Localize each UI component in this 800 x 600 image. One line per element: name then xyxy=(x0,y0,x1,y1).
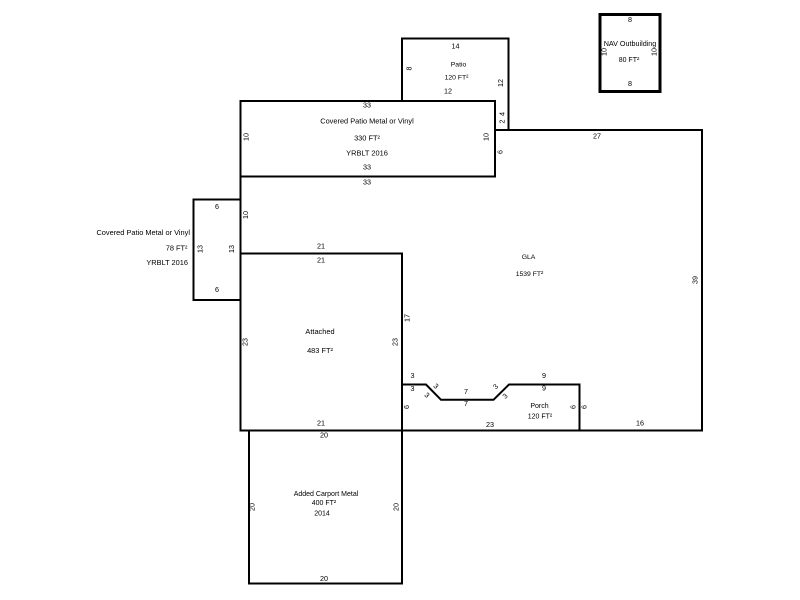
svg-text:4: 4 xyxy=(498,112,507,116)
svg-text:8: 8 xyxy=(628,15,632,24)
svg-text:GLA: GLA xyxy=(522,254,536,261)
svg-text:400 FT²: 400 FT² xyxy=(312,500,337,507)
svg-text:8: 8 xyxy=(628,79,632,88)
svg-text:21: 21 xyxy=(317,419,325,428)
svg-text:6: 6 xyxy=(215,285,219,294)
svg-text:10: 10 xyxy=(242,133,251,141)
svg-text:6: 6 xyxy=(496,150,505,154)
svg-text:7: 7 xyxy=(464,387,468,396)
svg-text:10: 10 xyxy=(241,211,250,219)
svg-text:10: 10 xyxy=(482,133,491,141)
svg-text:20: 20 xyxy=(320,431,328,440)
svg-text:33: 33 xyxy=(363,178,371,187)
svg-text:23: 23 xyxy=(486,420,494,429)
svg-text:16: 16 xyxy=(636,419,644,428)
svg-text:6: 6 xyxy=(580,405,589,409)
svg-text:17: 17 xyxy=(403,314,412,322)
svg-text:6: 6 xyxy=(402,405,411,409)
svg-text:120 FT²: 120 FT² xyxy=(528,414,553,421)
svg-text:6: 6 xyxy=(215,202,219,211)
svg-text:12: 12 xyxy=(444,87,452,96)
svg-text:27: 27 xyxy=(593,132,601,141)
svg-text:33: 33 xyxy=(363,163,371,172)
svg-text:20: 20 xyxy=(320,574,328,583)
svg-text:Porch: Porch xyxy=(530,403,548,410)
svg-text:20: 20 xyxy=(248,503,257,511)
svg-text:33: 33 xyxy=(363,101,371,110)
svg-text:483 FT²: 483 FT² xyxy=(307,346,333,355)
svg-text:7: 7 xyxy=(464,399,468,408)
svg-text:YRBLT 2016: YRBLT 2016 xyxy=(146,258,188,267)
svg-text:78 FT²: 78 FT² xyxy=(166,244,188,253)
svg-text:13: 13 xyxy=(227,245,236,253)
svg-text:3: 3 xyxy=(411,384,415,393)
svg-text:Added Carport Metal: Added Carport Metal xyxy=(294,491,359,498)
svg-text:1539 FT²: 1539 FT² xyxy=(516,271,544,278)
svg-text:120 FT²: 120 FT² xyxy=(445,75,470,82)
svg-text:8: 8 xyxy=(405,67,414,71)
svg-text:2: 2 xyxy=(498,120,507,124)
svg-text:23: 23 xyxy=(391,338,400,346)
svg-text:21: 21 xyxy=(317,256,325,265)
svg-text:10: 10 xyxy=(600,48,609,56)
svg-text:20: 20 xyxy=(392,503,401,511)
svg-text:9: 9 xyxy=(542,384,546,393)
svg-text:10: 10 xyxy=(650,48,659,56)
svg-text:14: 14 xyxy=(452,42,460,51)
svg-text:Covered Patio Metal or Vinyl: Covered Patio Metal or Vinyl xyxy=(320,117,414,126)
svg-text:13: 13 xyxy=(196,245,205,253)
svg-text:330 FT²: 330 FT² xyxy=(354,134,380,143)
svg-text:12: 12 xyxy=(496,79,505,87)
svg-text:2014: 2014 xyxy=(314,511,330,518)
svg-text:39: 39 xyxy=(691,276,700,284)
svg-text:Covered Patio Metal or Vinyl: Covered Patio Metal or Vinyl xyxy=(96,228,190,237)
svg-text:80 FT²: 80 FT² xyxy=(619,57,640,64)
svg-text:23: 23 xyxy=(241,338,250,346)
svg-text:6: 6 xyxy=(569,405,578,409)
svg-text:Attached: Attached xyxy=(305,327,334,336)
svg-text:9: 9 xyxy=(542,371,546,380)
svg-text:YRBLT 2016: YRBLT 2016 xyxy=(346,149,388,158)
svg-text:Patio: Patio xyxy=(451,62,467,69)
svg-text:3: 3 xyxy=(411,371,415,380)
svg-text:NAV Outbuilding: NAV Outbuilding xyxy=(604,39,657,48)
svg-text:21: 21 xyxy=(317,242,325,251)
